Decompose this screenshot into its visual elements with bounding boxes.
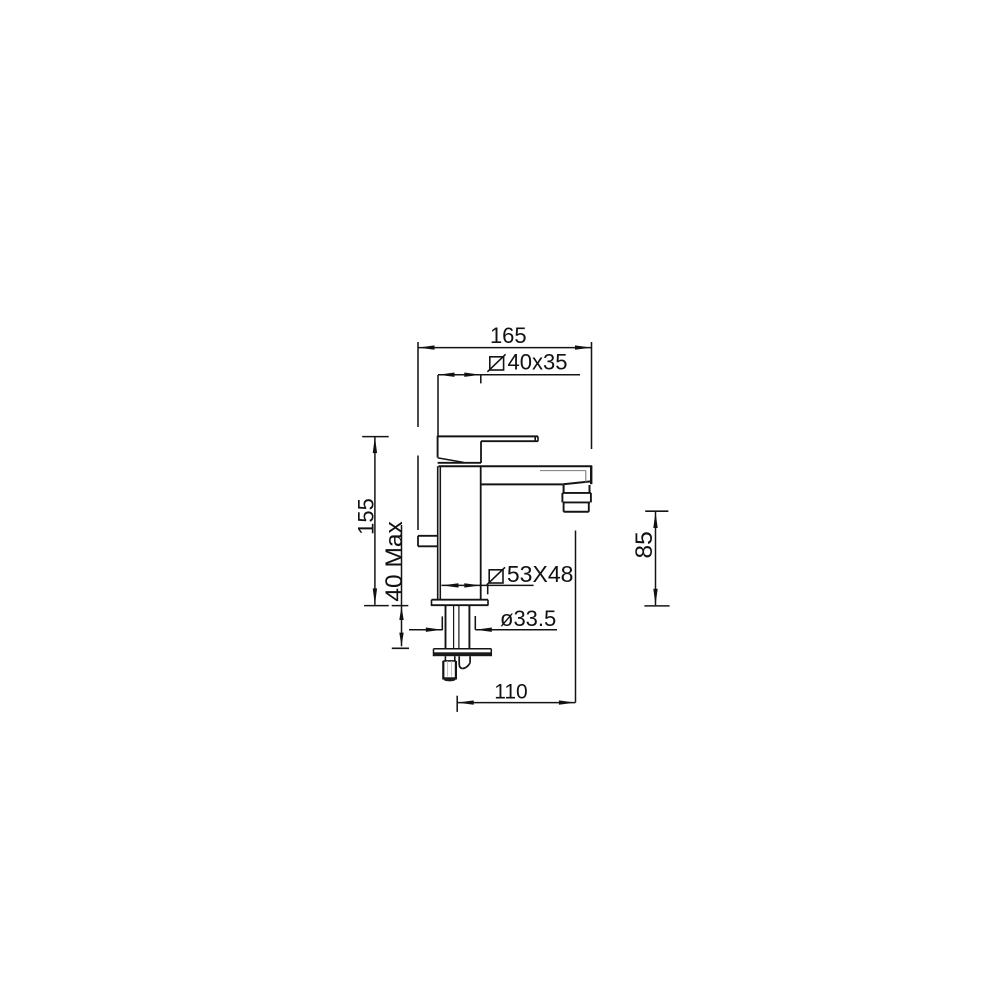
svg-text:40x35: 40x35: [508, 350, 568, 375]
svg-text:110: 110: [494, 681, 527, 704]
svg-text:85: 85: [631, 531, 658, 558]
svg-text:53X48: 53X48: [507, 561, 574, 587]
svg-text:40 Max: 40 Max: [381, 521, 408, 601]
svg-text:165: 165: [490, 323, 527, 348]
svg-text:155: 155: [353, 498, 378, 535]
svg-text:ø33.5: ø33.5: [500, 606, 556, 631]
